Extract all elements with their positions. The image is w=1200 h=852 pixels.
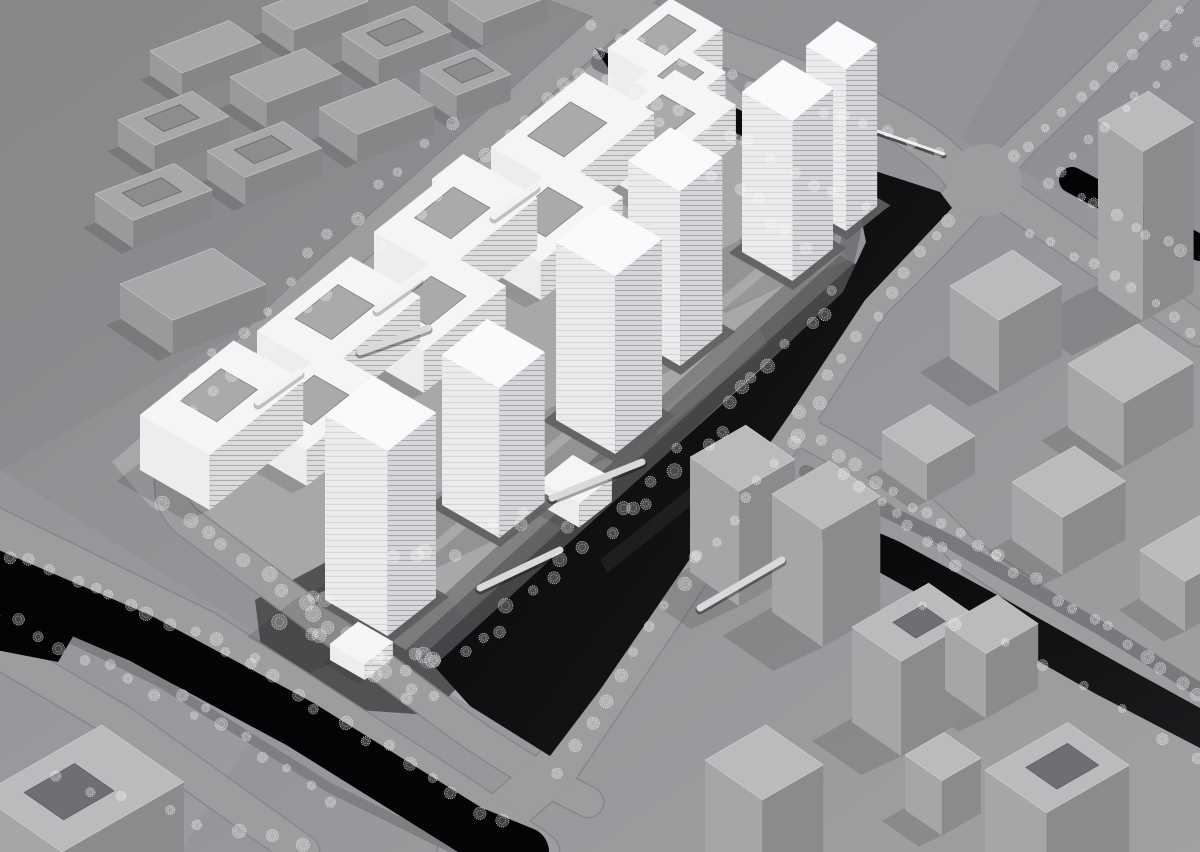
site-model-render: Aerial view of an urban development mass… [0,0,1200,852]
screenshot-root: Aerial view of an urban development mass… [0,0,1200,852]
